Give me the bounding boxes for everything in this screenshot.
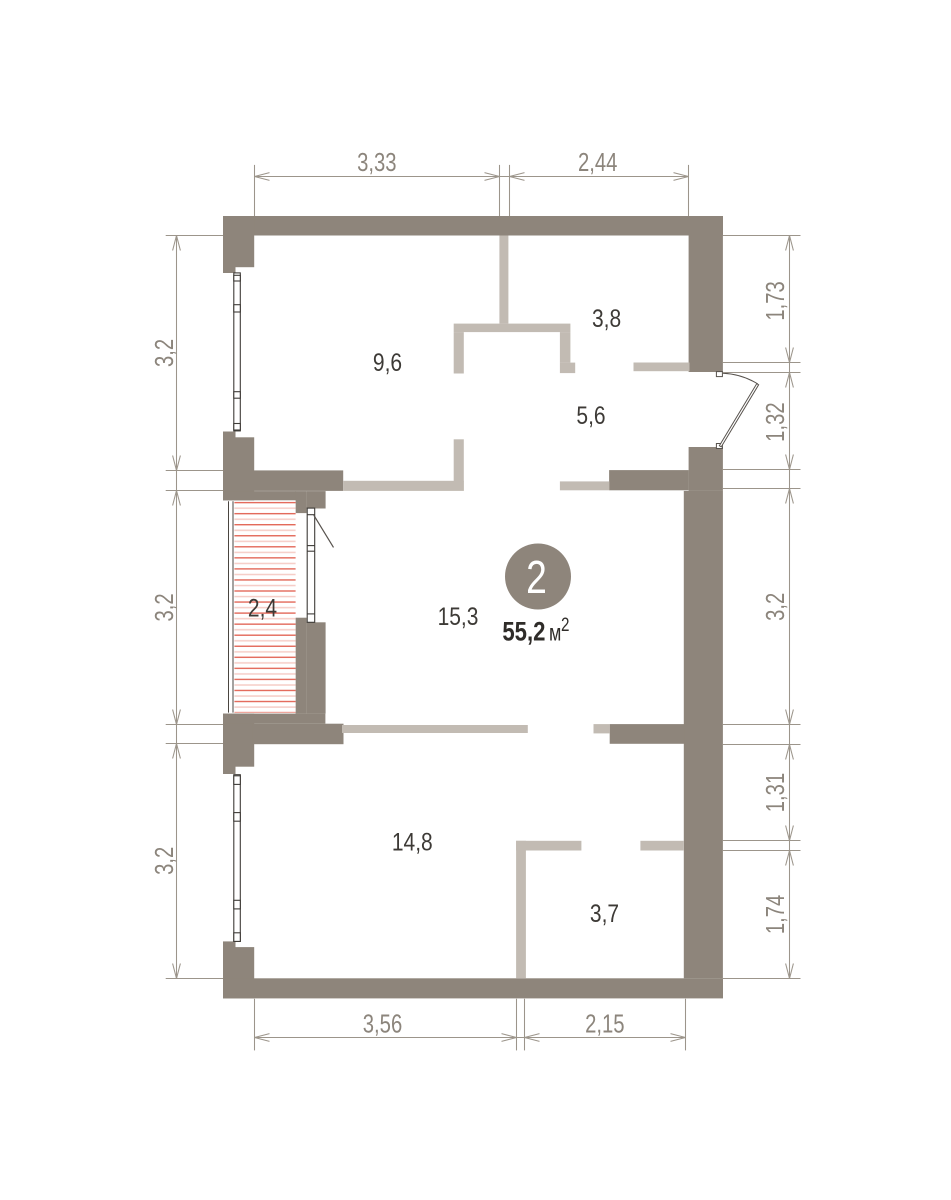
svg-text:55,2: 55,2 <box>502 618 545 648</box>
svg-text:1,32: 1,32 <box>761 402 790 441</box>
svg-text:2: 2 <box>526 551 547 603</box>
svg-text:м: м <box>549 621 561 647</box>
svg-text:3,56: 3,56 <box>363 1009 402 1038</box>
svg-text:3,2: 3,2 <box>150 847 179 875</box>
svg-text:3,2: 3,2 <box>761 593 790 621</box>
svg-text:3,2: 3,2 <box>150 593 179 621</box>
svg-text:1,31: 1,31 <box>761 773 790 812</box>
svg-text:5,6: 5,6 <box>576 401 605 429</box>
svg-text:2: 2 <box>561 613 569 635</box>
svg-text:3,2: 3,2 <box>150 339 179 367</box>
svg-text:3,33: 3,33 <box>357 148 396 177</box>
svg-text:1,73: 1,73 <box>761 281 790 320</box>
svg-text:14,8: 14,8 <box>392 828 433 856</box>
svg-text:2,44: 2,44 <box>578 148 617 177</box>
svg-text:1,74: 1,74 <box>761 895 790 934</box>
svg-text:3,8: 3,8 <box>592 304 621 332</box>
svg-text:3,7: 3,7 <box>590 899 619 927</box>
svg-text:9,6: 9,6 <box>373 348 402 376</box>
svg-text:15,3: 15,3 <box>438 602 479 630</box>
svg-text:2,4: 2,4 <box>248 594 277 622</box>
svg-text:2,15: 2,15 <box>585 1009 624 1038</box>
